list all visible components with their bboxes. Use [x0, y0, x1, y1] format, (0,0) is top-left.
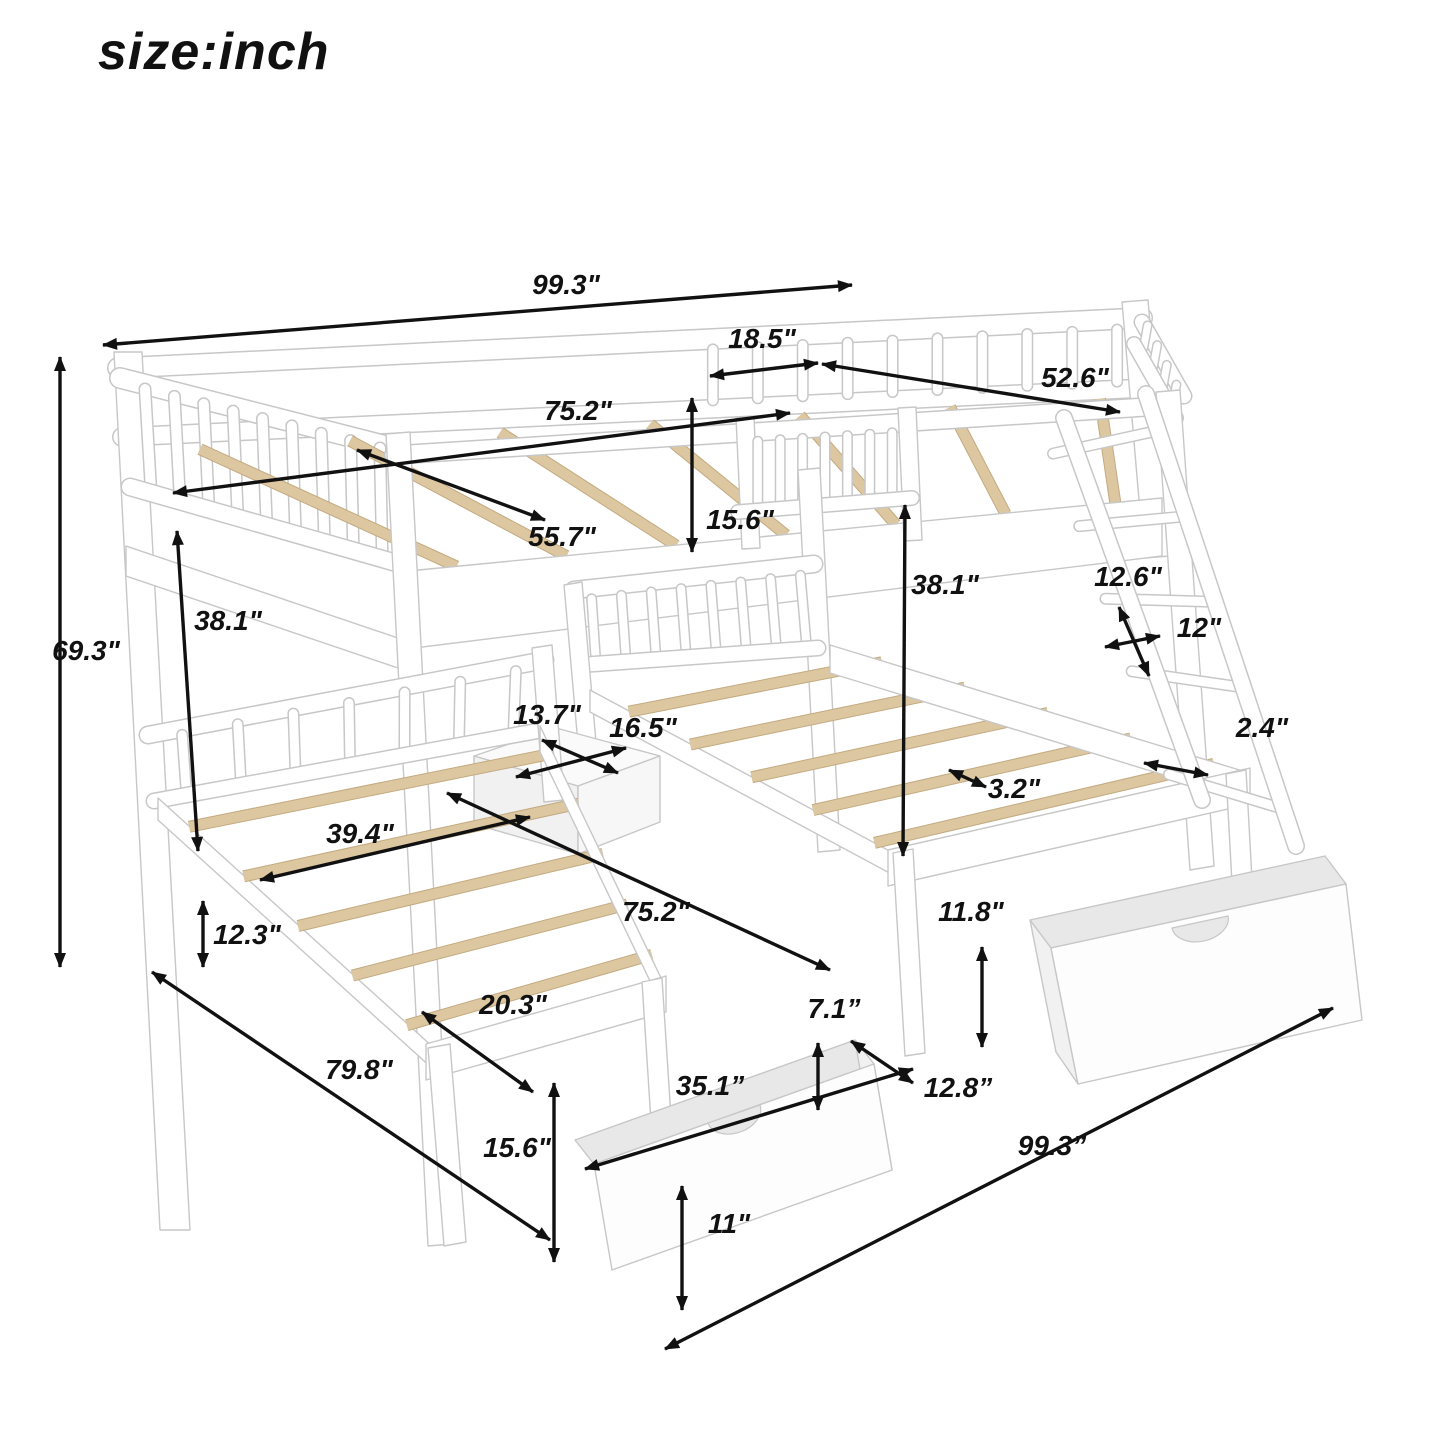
top-bed-width-label: 52.6" [1041, 362, 1109, 393]
shelf-depth-label: 13.7" [513, 699, 581, 730]
dimension-diagram-page: size:inch 99.3"18.5"52.6"75.2"15.6"55.7"… [0, 0, 1445, 1445]
ladder-step-depth-label: 2.4" [1235, 712, 1289, 743]
slat-width-label: 3.2" [988, 773, 1041, 804]
drawer-depth-label: 12.8” [924, 1072, 993, 1103]
overall-depth-label: 79.8" [325, 1054, 393, 1085]
right-bunk-clearance-arrow [903, 505, 905, 856]
twin-bed-width-label: 39.4" [326, 818, 394, 849]
foot-overhang-label: 20.3" [478, 989, 547, 1020]
rear-leg-height-label: 12.3" [213, 919, 281, 950]
top-bed-length-label: 75.2" [544, 395, 612, 426]
bunk-bed-illustration: 99.3"18.5"52.6"75.2"15.6"55.7"38.1"69.3"… [0, 0, 1445, 1445]
overall-length-top-label: 99.3" [532, 269, 600, 300]
right-leg-height-label: 11.8" [938, 896, 1004, 927]
bed-frame-drawing [114, 300, 1362, 1270]
shelf-width-label: 16.5" [609, 712, 677, 743]
drawer-top-gap-label: 7.1” [808, 993, 861, 1024]
twin-bed-width-arrow [260, 817, 530, 880]
top-rail-height-label: 15.6" [706, 504, 774, 535]
top-slat-length-label: 55.7" [528, 521, 596, 552]
guard-rail-section-label: 18.5" [728, 323, 796, 354]
front-leg-height-label: 15.6" [483, 1132, 551, 1163]
drawer-length-label: 35.1” [676, 1070, 745, 1101]
overall-length-bottom-label: 99.3” [1018, 1130, 1087, 1161]
overall-height-label: 69.3" [52, 635, 120, 666]
right-bunk-clearance-label: 38.1" [911, 569, 979, 600]
ladder-step-spacing-label: 12.6" [1094, 561, 1162, 592]
ladder-width-label: 12" [1177, 612, 1222, 643]
drawer-height-label: 11" [708, 1208, 751, 1239]
twin-bed-length-label: 75.2" [622, 896, 690, 927]
left-bunk-clearance-label: 38.1" [194, 605, 262, 636]
